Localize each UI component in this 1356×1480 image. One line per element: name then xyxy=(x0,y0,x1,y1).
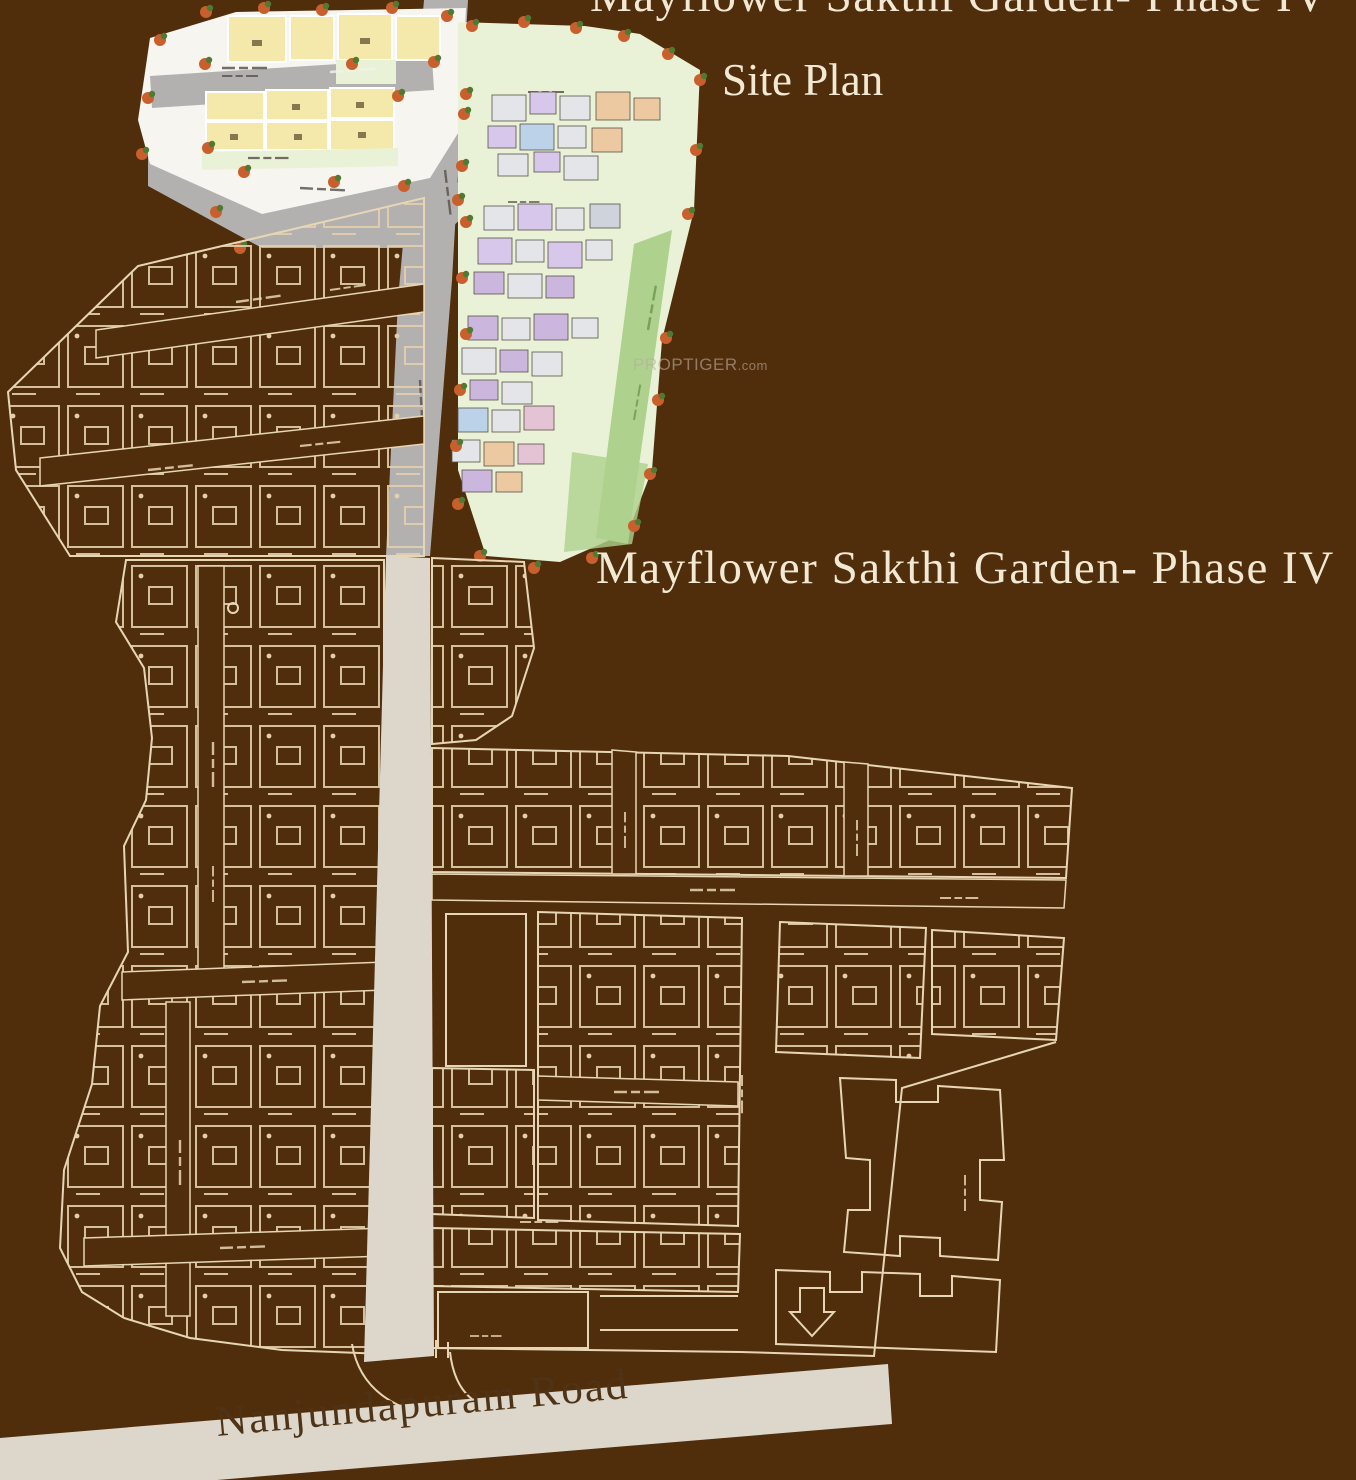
site-plan-heading: Site Plan xyxy=(722,54,883,106)
site-plan-drawing xyxy=(0,0,1356,1480)
page-title-clipped: Mayflower Sakthi Garden- Phase IV xyxy=(590,0,1329,23)
watermark: PROPTIGER.com xyxy=(633,355,768,375)
apartment-outlines xyxy=(740,1042,1056,1356)
site-plan-page: Mayflower Sakthi Garden- Phase IV Site P… xyxy=(0,0,1356,1480)
green-buildings-area xyxy=(452,22,700,562)
entrance-arrow-icon xyxy=(790,1288,834,1336)
project-title: Mayflower Sakthi Garden- Phase IV xyxy=(596,541,1335,595)
watermark-brand: PROPTIGER xyxy=(633,355,738,374)
watermark-suffix: .com xyxy=(738,358,768,373)
